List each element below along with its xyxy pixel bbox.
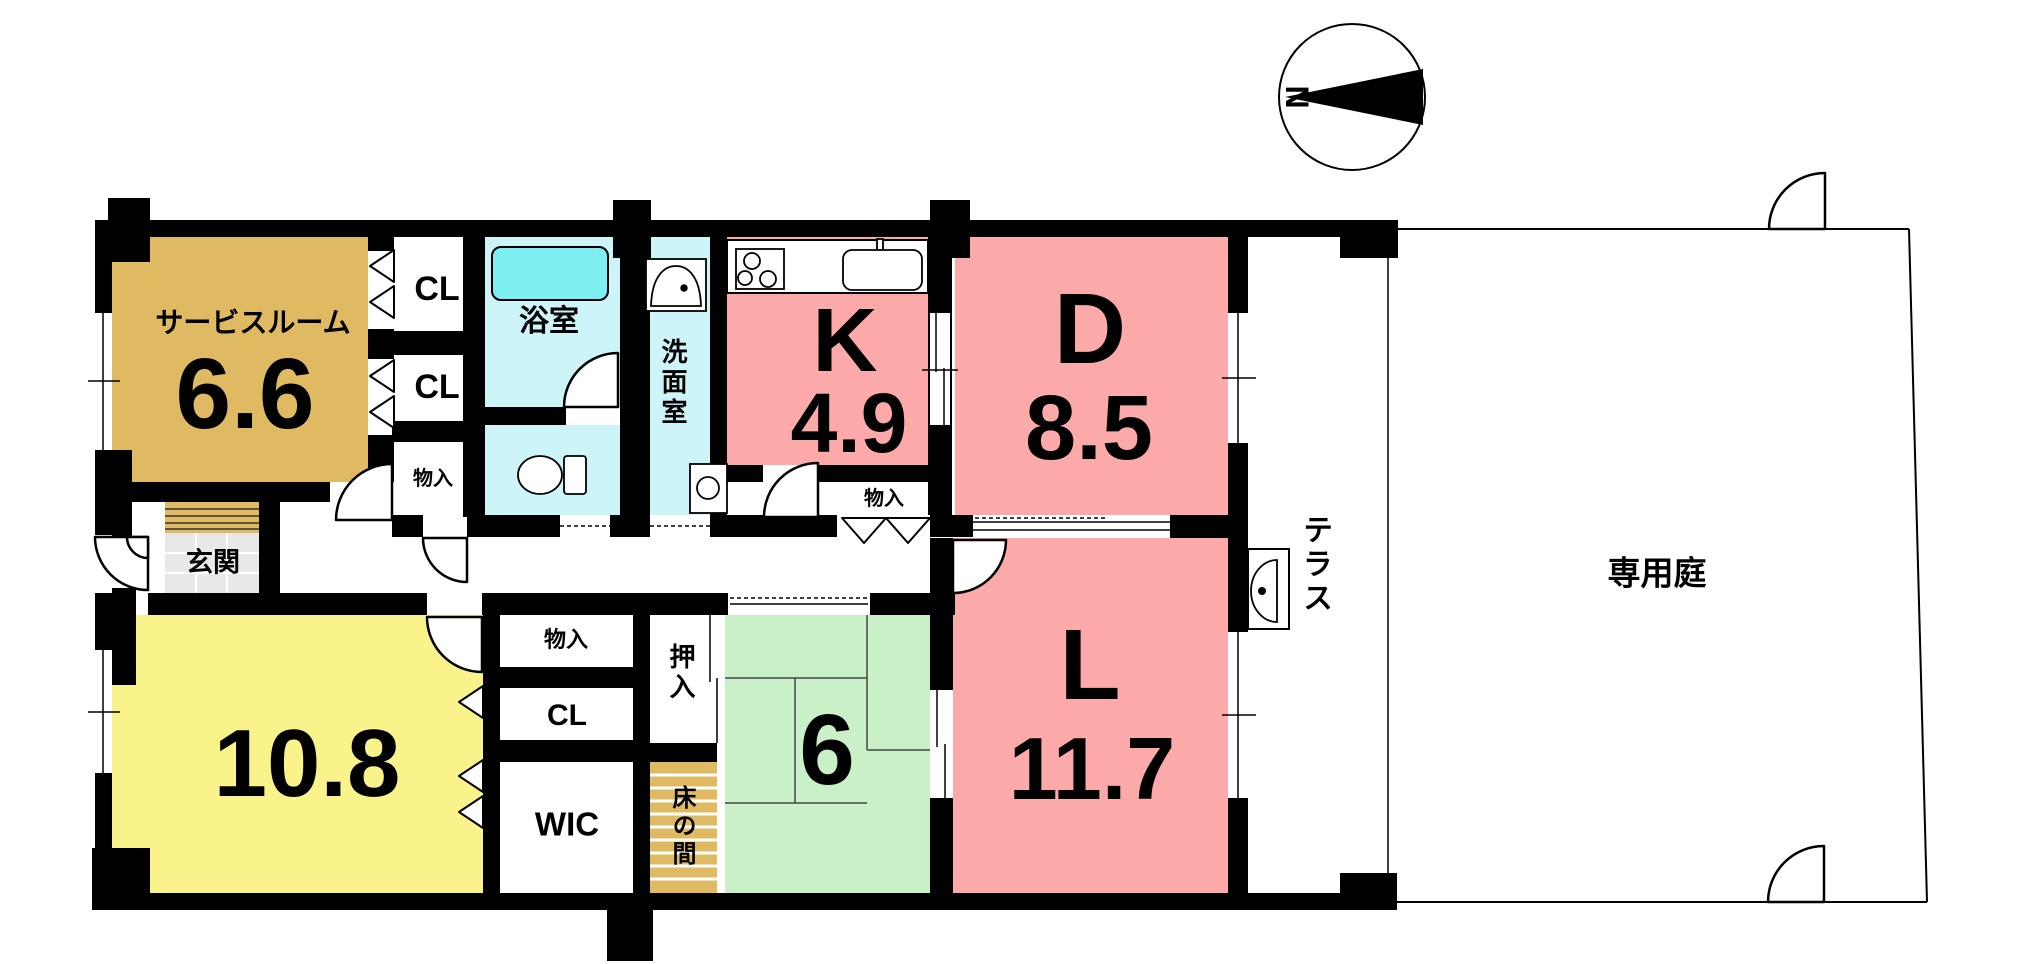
wash-basin-icon bbox=[646, 259, 706, 311]
closet2-folding-door bbox=[370, 360, 394, 392]
oshiire-label: 押入 bbox=[668, 643, 694, 703]
dining-name: D bbox=[1054, 279, 1126, 379]
living-size: 11.7 bbox=[1009, 725, 1175, 813]
kitchen-name: K bbox=[813, 296, 878, 386]
tokonoma-label: 床の間 bbox=[669, 785, 693, 869]
sliding-door-toilet bbox=[560, 515, 610, 537]
japanese-room-size: 6 bbox=[799, 700, 855, 800]
outdoor-sink-icon bbox=[1248, 549, 1289, 629]
washroom-label: 洗面室 bbox=[660, 338, 686, 428]
garden-gate-top-arc bbox=[1769, 173, 1825, 229]
stove-icon bbox=[736, 249, 784, 289]
storage3-label: 物入 bbox=[544, 629, 588, 651]
sliding-door-washroom bbox=[650, 515, 710, 537]
closet1-label: CL bbox=[414, 272, 459, 306]
sliding-door-tatami-corridor bbox=[728, 593, 870, 615]
dining-size: 8.5 bbox=[1025, 382, 1153, 474]
sliding-door-tatami-living bbox=[930, 690, 953, 798]
storage2-label: 物入 bbox=[864, 489, 904, 509]
terrace-label: テラス bbox=[1299, 514, 1329, 616]
closet1-folding-door bbox=[370, 250, 394, 282]
garden-gates bbox=[1768, 173, 1825, 902]
floor-plan: サービスルーム 6.6 CL CL 物入 浴室 洗面室 K 4.9 D 8.5 … bbox=[0, 0, 2021, 964]
bathroom-label: 浴室 bbox=[519, 307, 579, 337]
service-room-name: サービスルーム bbox=[155, 309, 350, 337]
garden-gate-bottom-arc bbox=[1768, 846, 1824, 902]
bathtub-icon bbox=[492, 247, 608, 300]
washing-machine-pan-icon bbox=[690, 464, 727, 513]
kitchen-size: 4.9 bbox=[791, 381, 908, 465]
storage1-door-arc bbox=[423, 538, 467, 582]
opening-dining-living bbox=[973, 515, 1170, 538]
compass-north-label: N bbox=[1281, 85, 1313, 108]
closet2-folding-door bbox=[370, 396, 394, 428]
living-name: L bbox=[1059, 615, 1120, 715]
storage1-label: 物入 bbox=[413, 469, 453, 489]
closet1-folding-door bbox=[370, 286, 394, 318]
western-room-size: 10.8 bbox=[214, 716, 401, 812]
closet3-label: CL bbox=[547, 701, 587, 731]
entrance-label: 玄関 bbox=[186, 550, 240, 577]
kitchen-door-arc bbox=[764, 463, 818, 517]
toilet-icon bbox=[518, 456, 586, 494]
service-room-size: 6.6 bbox=[175, 344, 314, 444]
sliding-door-oshiire bbox=[705, 615, 725, 743]
wic-label: WIC bbox=[535, 808, 599, 841]
closet2-label: CL bbox=[414, 370, 459, 404]
floor-plan-drawing bbox=[0, 0, 2021, 964]
garden-label: 専用庭 bbox=[1608, 557, 1707, 590]
